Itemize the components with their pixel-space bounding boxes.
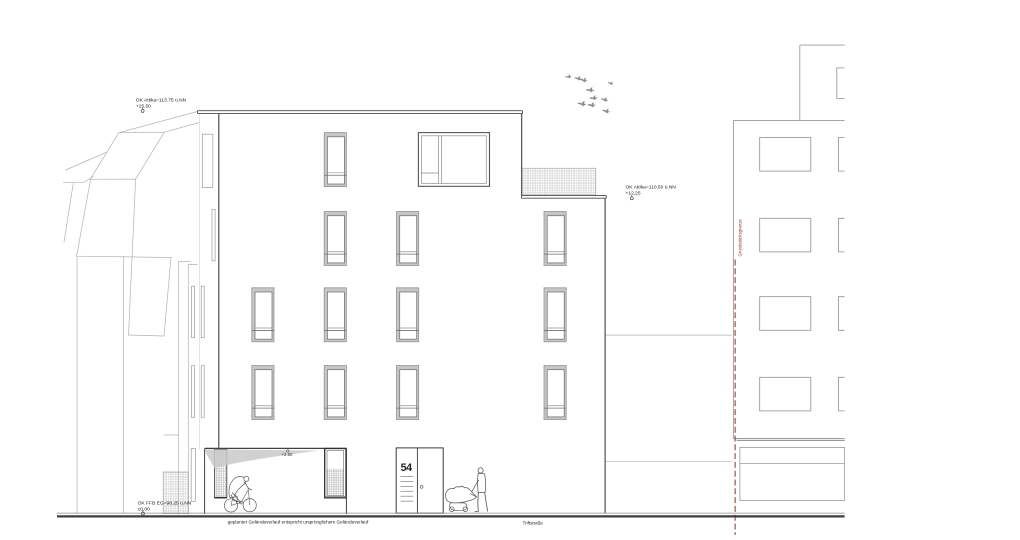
svg-text:+15,50: +15,50	[136, 104, 151, 110]
svg-text:+12,25: +12,25	[626, 191, 641, 197]
svg-text:OK FFB EG=98.25 ü.NN: OK FFB EG=98.25 ü.NN	[138, 501, 192, 507]
svg-text:Triftstraße: Triftstraße	[523, 521, 544, 526]
svg-text:54: 54	[401, 462, 413, 474]
svg-text:±0,00: ±0,00	[138, 506, 150, 512]
svg-text:Grundstücksgrenze: Grundstücksgrenze	[738, 219, 743, 257]
svg-text:OK Attika=113.75 ü.NN: OK Attika=113.75 ü.NN	[136, 98, 187, 104]
svg-text:+2.50: +2.50	[282, 452, 293, 457]
svg-text:geplanter Geländeverlauf entsp: geplanter Geländeverlauf entspricht ursp…	[228, 520, 369, 525]
svg-text:OK Attika=110.50 ü.NN: OK Attika=110.50 ü.NN	[626, 184, 677, 190]
